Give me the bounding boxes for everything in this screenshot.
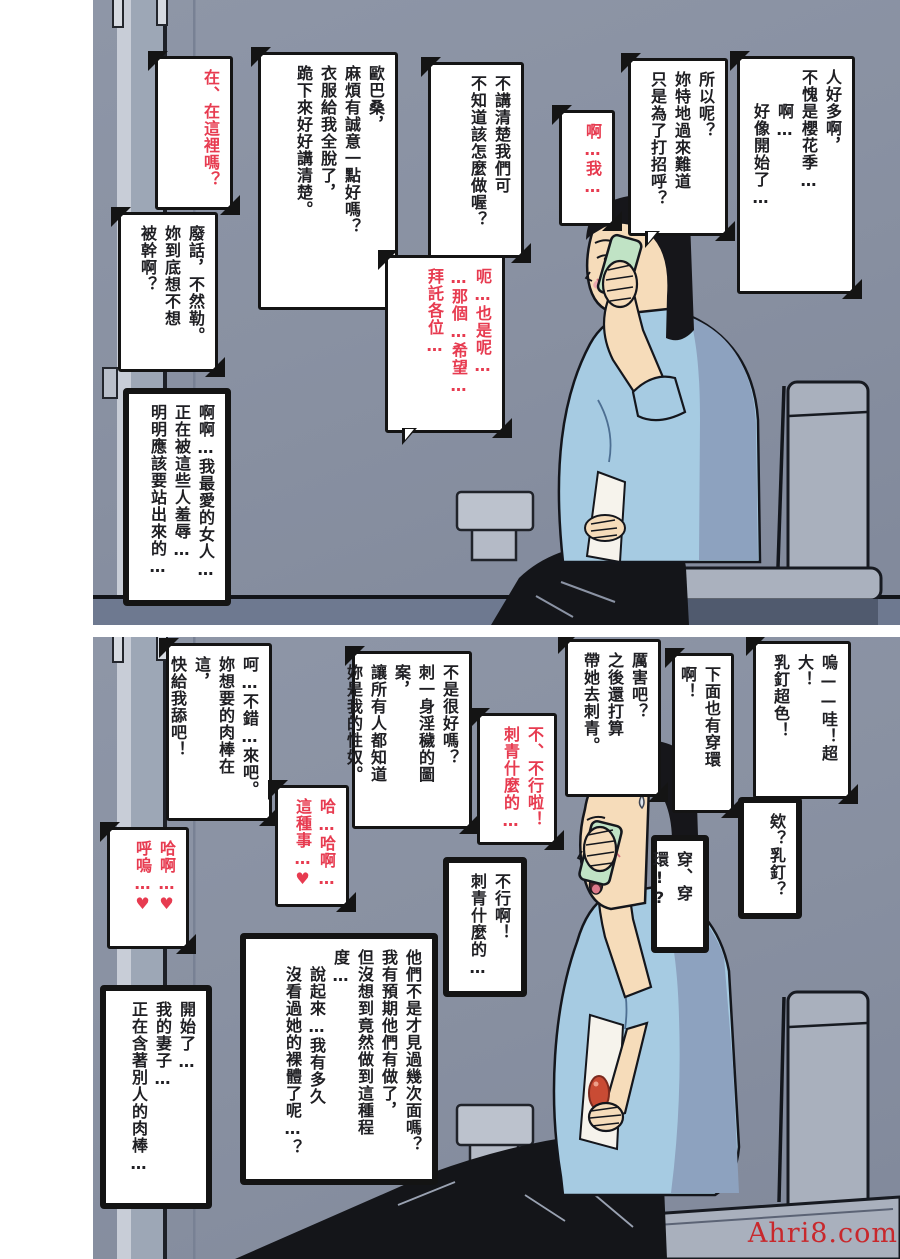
shirt-shadow — [690, 317, 758, 560]
bubble-tail — [402, 428, 417, 445]
panel-2: 嗚——哇！超大！ 乳釘超色！ 下面也有穿環啊！ 厲害吧？ 之後還打算 帶她去刺青… — [93, 637, 900, 1259]
speech-bubble: 下面也有穿環啊！ — [672, 653, 734, 813]
speech-bubble: 不是很好嗎？ 刺一身淫穢的圖案， 讓所有人都知道 妳是我的性奴。 — [352, 651, 472, 829]
speech-bubble: 在、在這裡嗎？ — [155, 56, 233, 210]
speech-bubble: 不、不行啦！ 刺青什麼的… — [477, 713, 557, 845]
site-watermark: Ahri8.com — [748, 1218, 898, 1249]
speech-bubble: 人好多啊， 不愧是櫻花季… 啊… 好像開始了… — [737, 56, 855, 294]
thought-bubble: 不行啊！ 刺青什麼的… — [443, 857, 527, 997]
phone-voice-bubble: 穿、穿環!? — [651, 835, 709, 953]
speech-bubble: 歐巴桑， 麻煩有誠意一點好嗎？ 衣服給我全脫了， 跪下來好好講清楚。 — [258, 52, 398, 310]
speech-bubble: 呵…不錯…來吧。 妳想要的肉棒在這， 快給我舔吧！ — [166, 643, 272, 821]
speech-bubble: 厲害吧？ 之後還打算 帶她去刺青。 — [565, 639, 661, 797]
speech-bubble: 不講清楚我們可 不知道該怎麼做喔？ — [428, 62, 524, 258]
speech-bubble: 廢話，不然勒。 妳到底想不想 被幹啊？ — [118, 212, 218, 372]
bubble-tail — [645, 231, 660, 248]
thought-bubble: 啊啊…我最愛的女人… 正在被這些人羞辱… 明明應該要站出來的… — [123, 388, 231, 606]
panel-1: 人好多啊， 不愧是櫻花季… 啊… 好像開始了… 所以呢？ 妳特地過來難道 只是為… — [93, 0, 900, 625]
flush-plate — [457, 492, 533, 560]
thought-bubble: 開始了… 我的妻子… 正在含著別人的肉棒… — [100, 985, 212, 1209]
speech-bubble: 呃…也是呢… …那個…希望… 拜託各位… — [385, 255, 505, 433]
speech-bubble: 哈啊…♥ 呼嗚…♥ — [107, 827, 189, 949]
thought-bubble: 他們不是才見過幾次面嗎？ 我有預期他們有做了， 但沒想到竟然做到這種程度… 說起… — [240, 933, 438, 1185]
speech-bubble: 所以呢？ 妳特地過來難道 只是為了打招呼？ — [628, 58, 728, 236]
speech-bubble: 哈…哈啊… 這種事…♥ — [275, 785, 349, 907]
speech-bubble: 嗚——哇！超大！ 乳釘超色！ — [753, 641, 851, 799]
phone-voice-bubble: 欸？乳釘？ — [738, 797, 802, 919]
man-on-phone — [491, 195, 760, 625]
speech-bubble: 啊…我… — [559, 110, 615, 226]
comic-page: 人好多啊， 不愧是櫻花季… 啊… 好像開始了… 所以呢？ 妳特地過來難道 只是為… — [0, 0, 900, 1259]
